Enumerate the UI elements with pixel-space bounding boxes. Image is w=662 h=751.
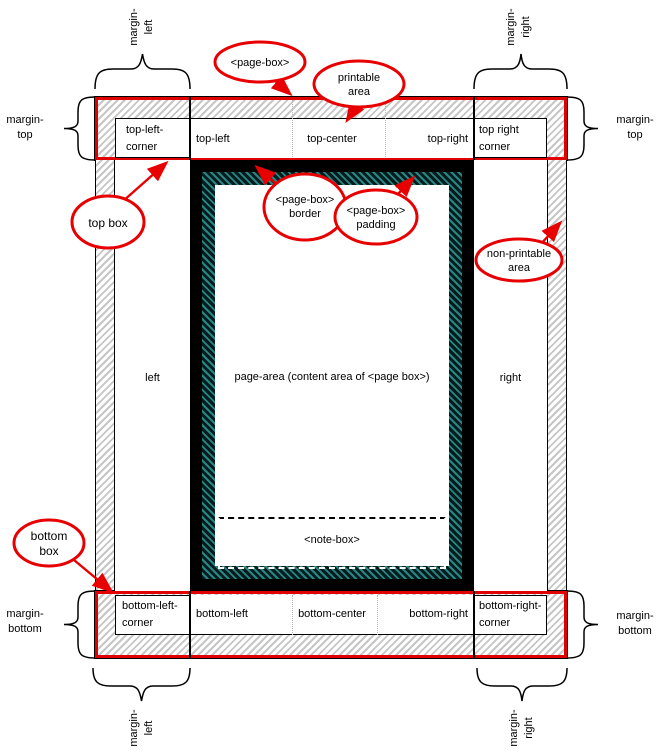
arrow-top-box: [122, 164, 165, 202]
callout-non-printable-area-label: non-printable area: [469, 247, 569, 275]
callout-top-box-label: top box: [68, 216, 148, 230]
callout-overlay: [0, 0, 662, 751]
callout-page-box-padding-label: <page-box> padding: [326, 204, 426, 232]
callout-printable-area-label: printable area: [314, 71, 404, 99]
arrow-bottom-box: [74, 560, 110, 590]
callout-page-box-label: <page-box>: [210, 56, 310, 70]
callout-bottom-box-label: bottom box: [9, 529, 89, 559]
arrow-page-box-padding: [398, 179, 412, 194]
page-box-diagram: top-left- corner top-left top-center top…: [0, 0, 662, 751]
